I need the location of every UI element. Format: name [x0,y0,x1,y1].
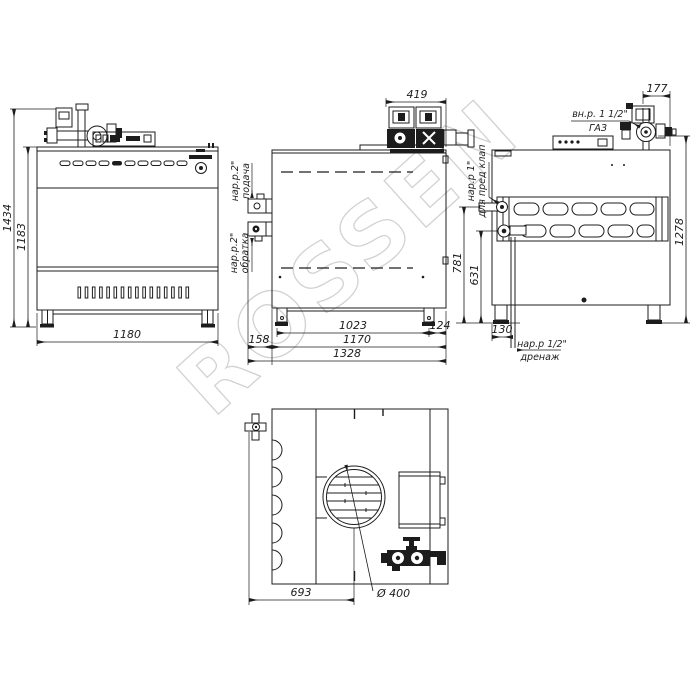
dim-pump-assembly: 419 [407,88,428,101]
return-thread-label: нар.р.2" [229,233,240,274]
gas-label: ГАЗ [589,123,607,134]
dim-leg-span: 1023 [339,319,367,332]
side-pipe-labels: нар.р.2" подача нар.р.2" обратка [229,161,252,274]
dim-front-body-height: 1183 [15,223,28,251]
flue-opening [316,466,388,528]
watermark-text: ROSSEN [160,80,539,435]
technical-drawing-canvas: ROSSEN [0,0,700,700]
return-connection-back [498,225,526,237]
back-control-panel [553,136,613,149]
plan-dimensions: 693 Ø 400 [249,432,410,605]
dim-front-total-height: 1434 [1,204,14,232]
dim-rear-overhang: 124 [430,319,451,332]
plan-pump-assembly [381,537,446,571]
plan-coil-scallops [272,440,282,570]
plan-terminal-box [399,472,445,528]
bottom-plan-view: 693 Ø 400 [245,409,448,605]
front-boiler-body [37,147,218,314]
dim-drain-offset: 130 [492,323,513,336]
dim-total-depth: 1328 [333,347,361,360]
dim-body-depth: 1170 [343,333,371,346]
supply-thread-label: нар.р.2" [230,161,241,202]
safety-thread-label: нар.р 1" [466,161,477,202]
drain-label: дренаж [519,352,559,363]
dim-safety-height: 781 [451,253,464,274]
dim-flue-center-offset: 693 [291,586,312,599]
dim-flue-diameter: Ø 400 [376,587,410,600]
dim-back-total-height: 1278 [673,218,686,246]
dim-front-width: 1180 [113,328,141,341]
plan-bracket [245,414,266,440]
front-legs [40,310,215,328]
dim-gas-offset: 177 [647,82,668,95]
return-label: обратка [240,233,251,274]
safety-valve-label: для пред клап [477,145,488,219]
gas-valve-assembly [620,103,676,150]
front-louver-slots [60,161,187,166]
back-legs [493,305,662,324]
dim-return-height: 631 [468,265,481,286]
gas-thread-label: вн.р. 1 1/2" [572,109,628,120]
front-vent-slots [78,287,189,298]
supply-label: подача [241,163,252,199]
front-sight-knob [189,143,214,174]
drawing-page: ROSSEN [0,0,700,700]
front-view: 1434 1183 1180 [1,104,218,346]
drain-thread-label: нар.р 1/2" [517,339,567,350]
dim-front-overhang: 158 [249,333,270,346]
